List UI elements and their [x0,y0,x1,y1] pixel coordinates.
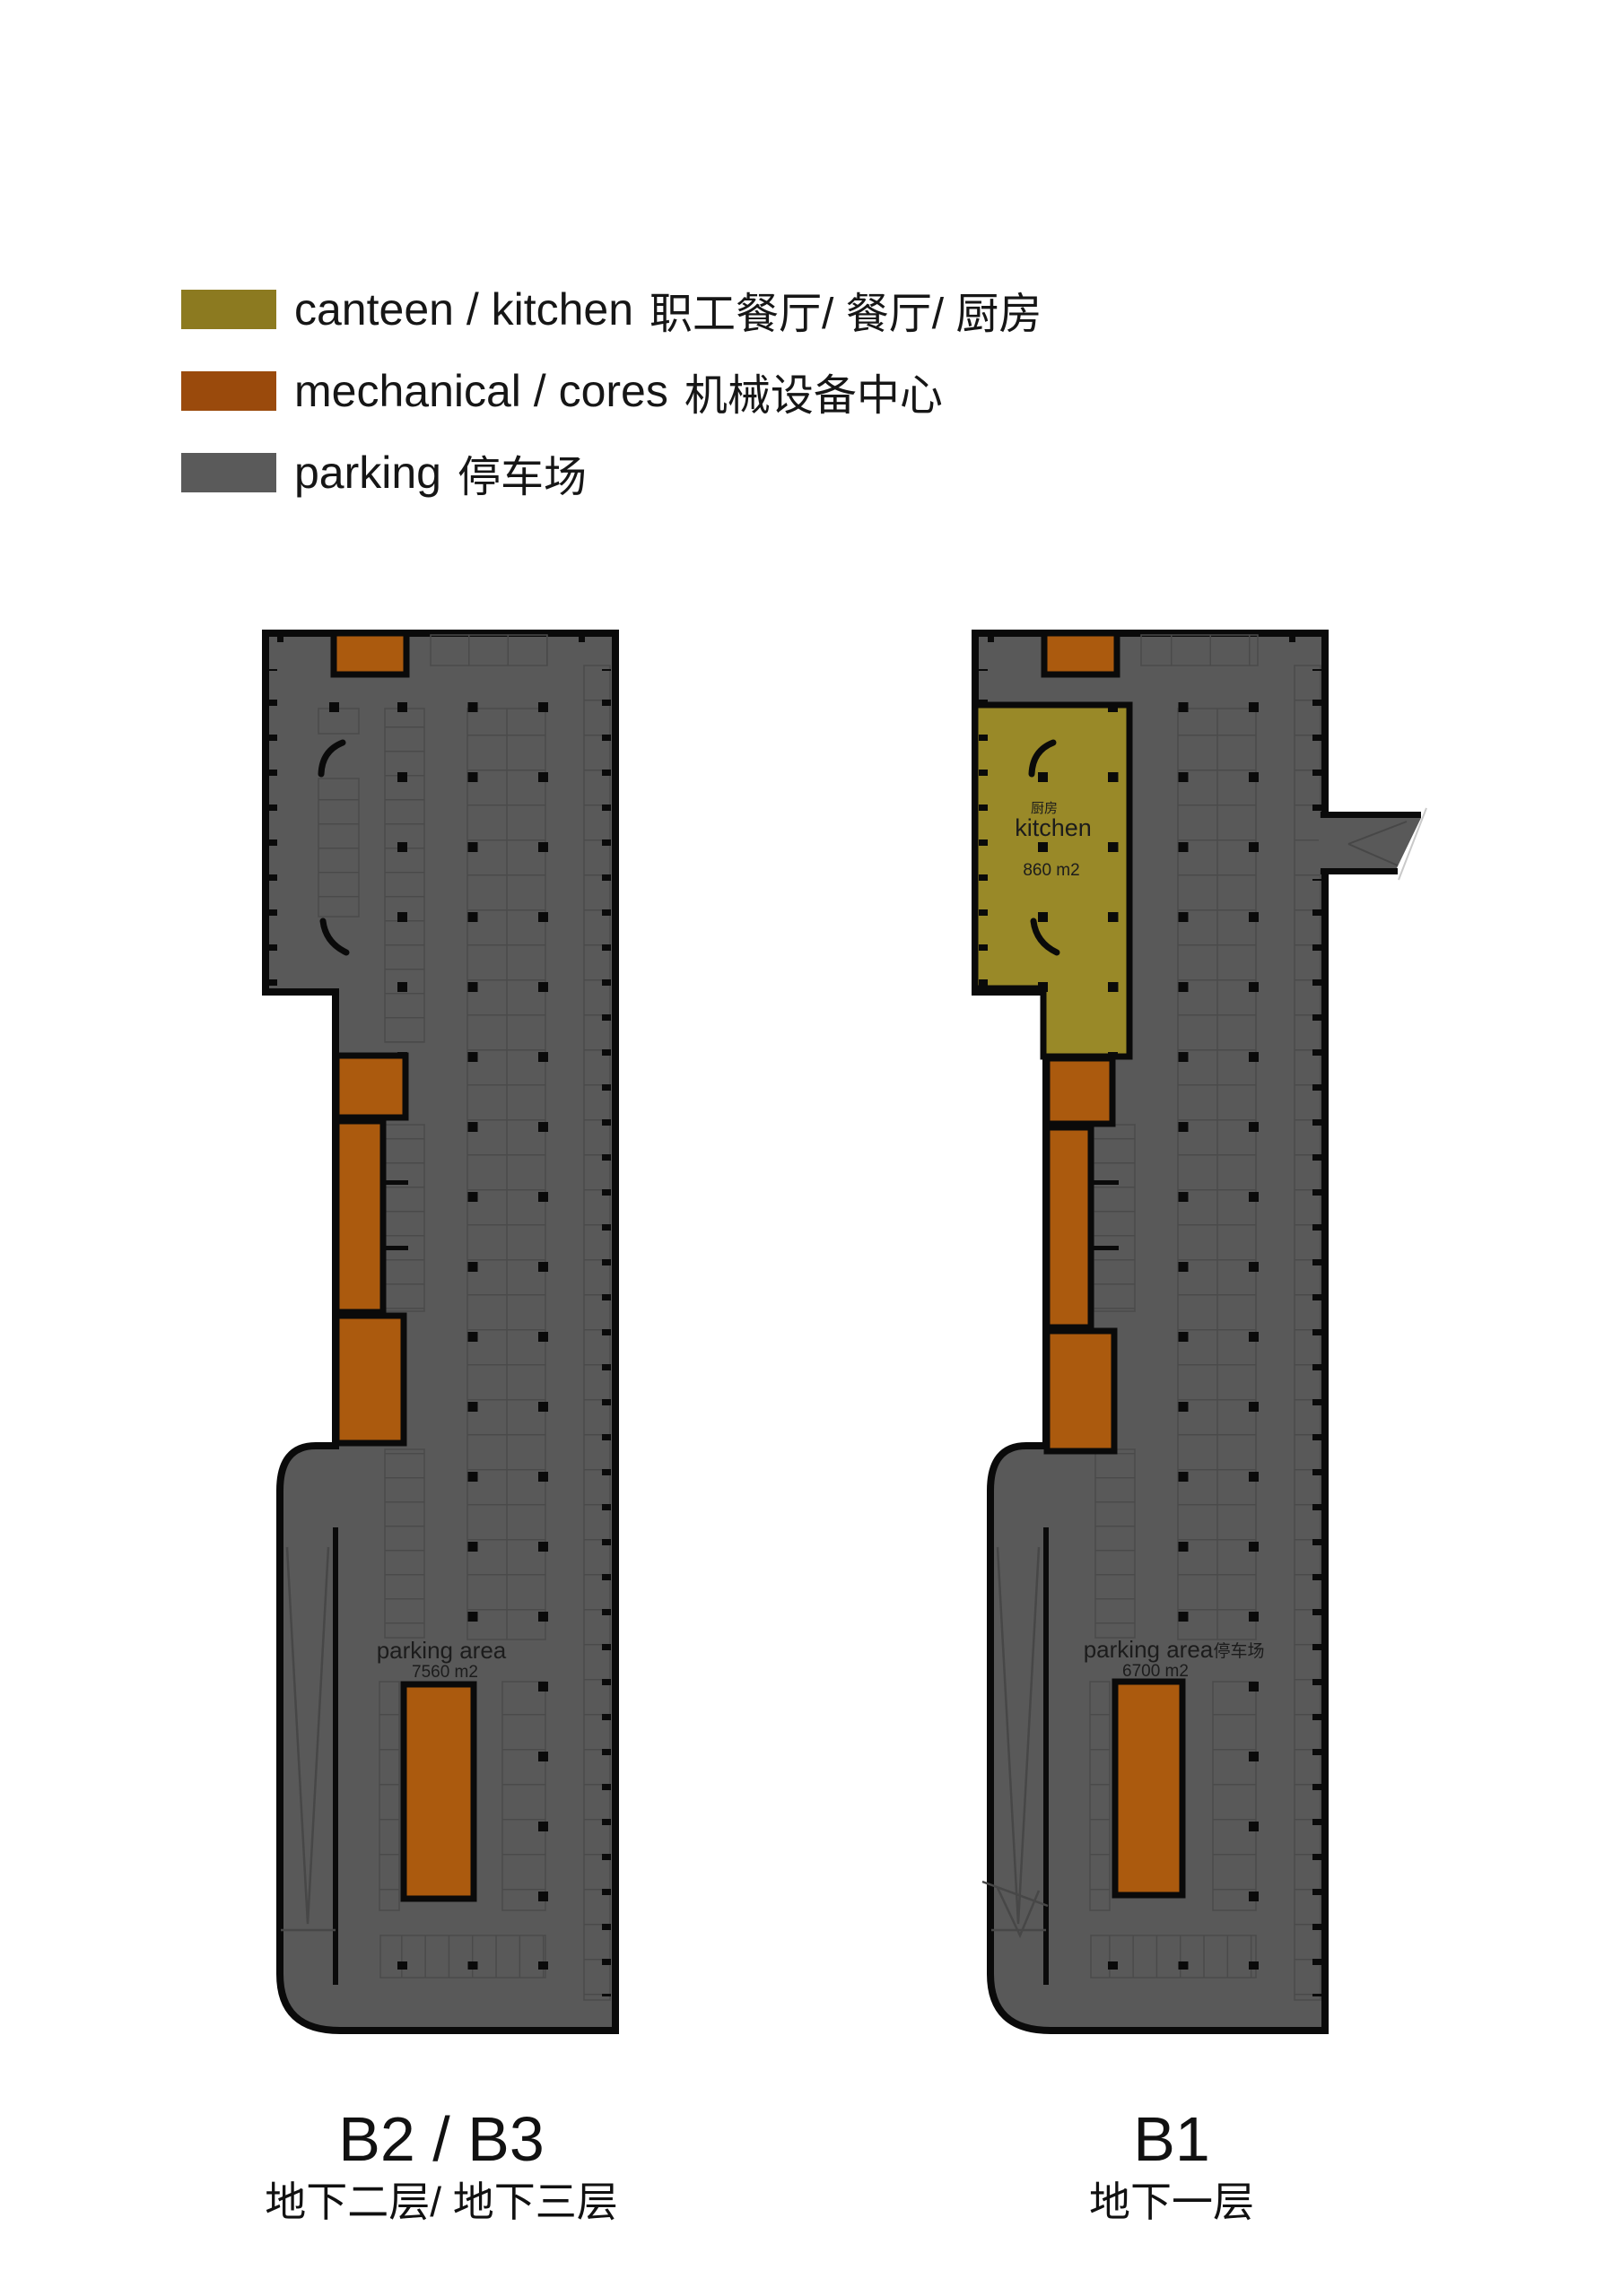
interior-wall [333,1527,338,1985]
entry-ramp-protrusion [1319,808,1426,880]
interior-wall [1043,1527,1049,1985]
plan-subtitle: 地下二层/ 地下三层 [172,2178,711,2226]
kitchen-area-value: 860 m2 [1023,861,1079,880]
stall-divider-wall [1094,1180,1119,1185]
parking-area-value: 6700 m2 [1122,1662,1189,1681]
stall-divider-wall [383,1246,408,1250]
parking-area-label: parking area [1084,1636,1214,1663]
caption-b1: B1 地下一层 [902,2106,1441,2226]
floor-plan-b2b3: parking area 7560 m2 [266,633,615,2031]
parking-area-value: 7560 m2 [412,1663,478,1682]
floor-plans-drawing: parking area 7560 m2 [0,0,1613,2296]
kitchen-label-en: kitchen [1015,814,1092,841]
plan-title: B1 [902,2106,1441,2172]
plan-title: B2 / B3 [172,2106,711,2172]
caption-b2b3: B2 / B3 地下二层/ 地下三层 [172,2106,711,2226]
parking-area-label-zh: 停车场 [1213,1641,1264,1661]
parking-area-label: parking area [377,1637,507,1664]
stall-divider-wall [1094,1246,1119,1250]
stall-divider-wall [383,1180,408,1185]
floor-plan-b1: 厨房 kitchen 860 m2 parking area 停车场 6700 … [975,633,1426,2031]
plan-subtitle: 地下一层 [902,2178,1441,2226]
